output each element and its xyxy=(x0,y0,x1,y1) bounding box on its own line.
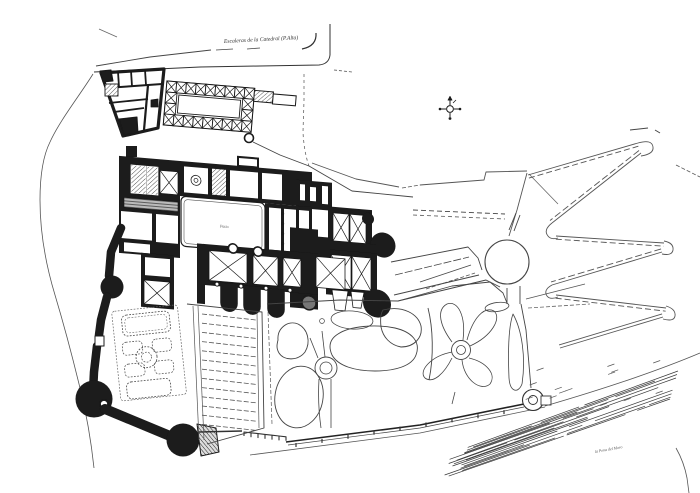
svg-text:Patio: Patio xyxy=(219,223,229,229)
